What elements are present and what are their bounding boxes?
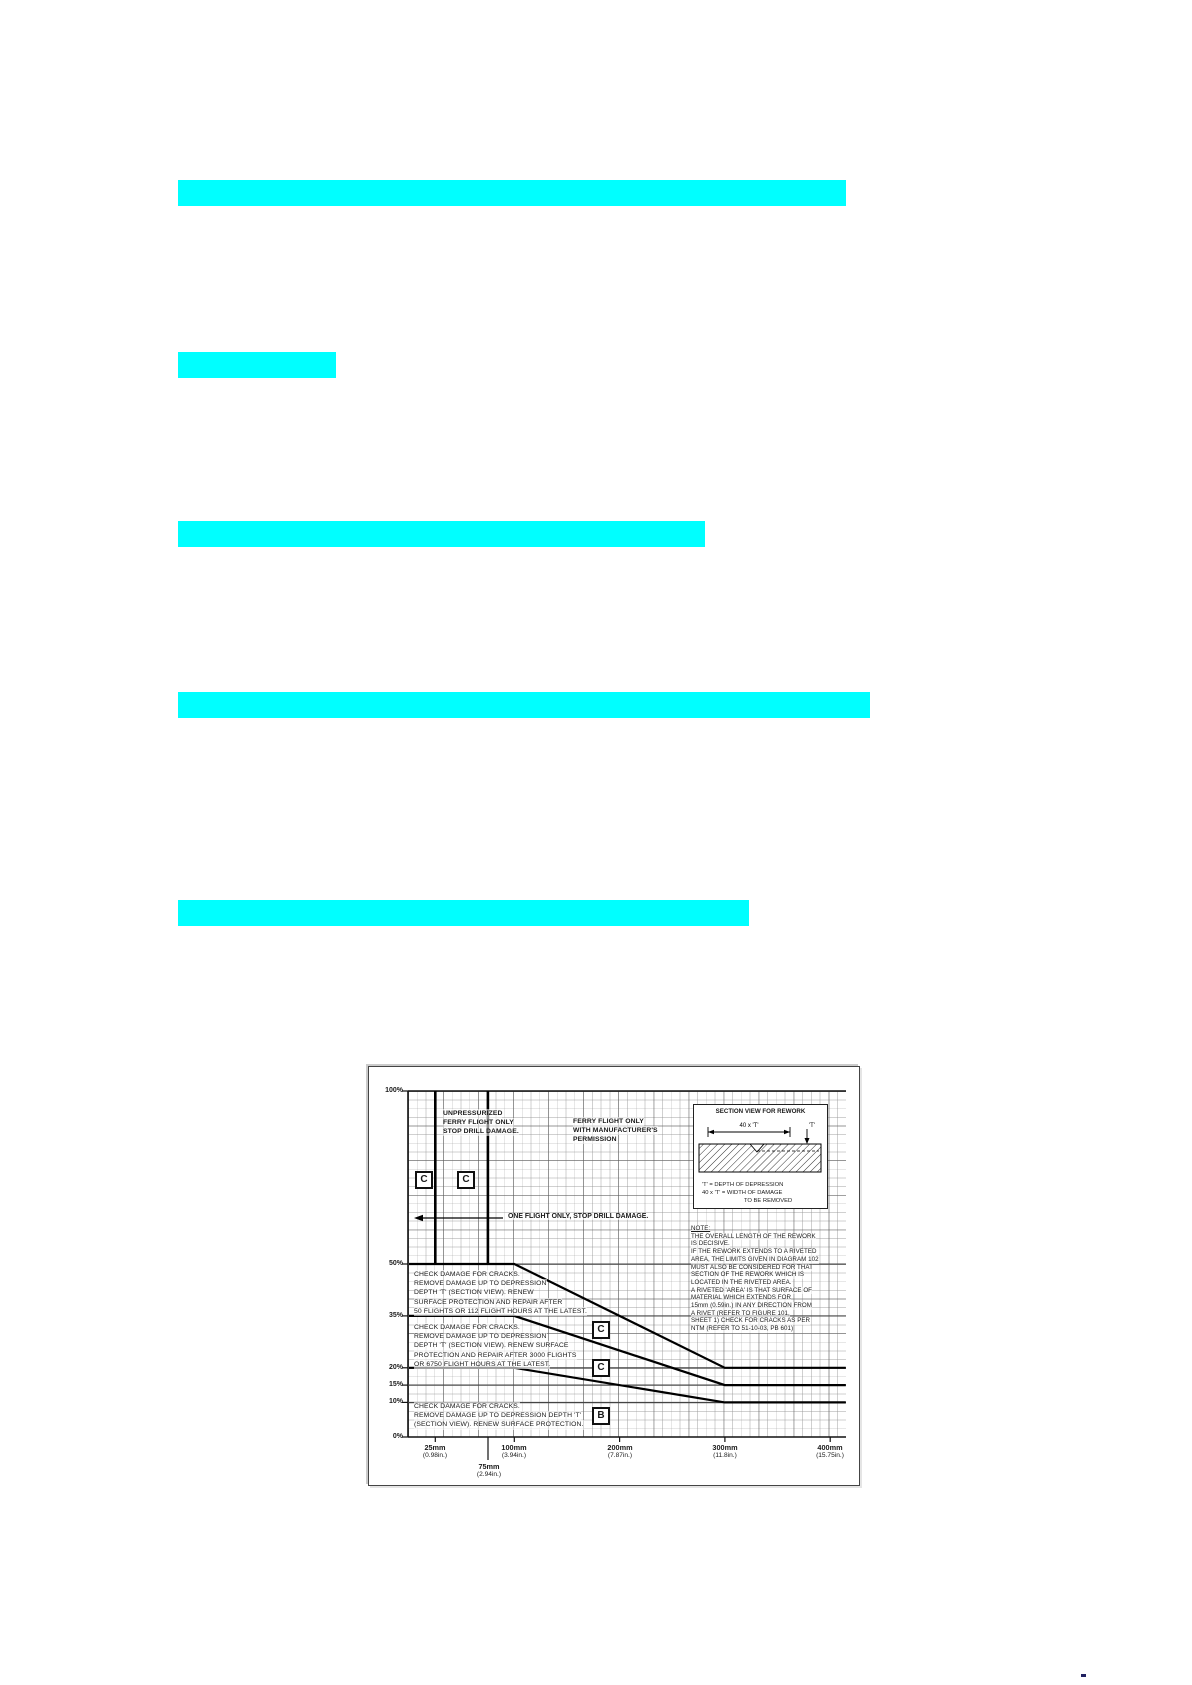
damage-limit-figure: 100% 50% 35% 20% 15% 10% 0% 25mm (0.98in… [368, 1066, 860, 1486]
callout-box-c4: C [592, 1359, 610, 1377]
y-label-15: 15% [369, 1381, 403, 1388]
callout-box-b: B [592, 1407, 610, 1425]
section-view-inset: SECTION VIEW FOR REWORK 40 x 'T' 'T' [693, 1104, 828, 1209]
note-block: NOTE: THE OVERALL LENGTH OF THE REWORK I… [691, 1225, 819, 1333]
x-label-25mm: 25mm (0.98in.) [423, 1444, 447, 1460]
instruction-block-50-flights: CHECK DAMAGE FOR CRACKS. REMOVE DAMAGE U… [414, 1270, 587, 1316]
x-label-100mm: 100mm (3.94in.) [501, 1444, 526, 1460]
callout-box-c2: C [457, 1171, 475, 1189]
callout-box-c1: C [415, 1171, 433, 1189]
x-label-400mm: 400mm (15.75in.) [816, 1444, 844, 1460]
document-page: 100% 50% 35% 20% 15% 10% 0% 25mm (0.98in… [0, 0, 1192, 1685]
y-label-10: 10% [369, 1398, 403, 1405]
section-view-drawing: 40 x 'T' 'T' [694, 1118, 827, 1180]
highlight-bar-4 [178, 692, 870, 718]
x-label-300mm: 300mm (11.8in.) [712, 1444, 737, 1460]
inset-t-label: 'T' [809, 1123, 815, 1129]
y-label-20: 20% [369, 1364, 403, 1371]
instruction-block-surface-protection: CHECK DAMAGE FOR CRACKS. REMOVE DAMAGE U… [414, 1402, 584, 1430]
inset-title: SECTION VIEW FOR REWORK [694, 1108, 827, 1115]
x-label-200mm: 200mm (7.87in.) [607, 1444, 632, 1460]
zone-ferry-flight: FERRY FLIGHT ONLY WITH MANUFACTURER'S PE… [573, 1117, 658, 1144]
page-artifact-speck [1081, 1674, 1086, 1677]
y-label-50: 50% [369, 1260, 403, 1267]
one-flight-arrow [414, 1215, 503, 1221]
inset-legend: 'T' = DEPTH OF DEPRESSION 40 x 'T' = WID… [702, 1181, 792, 1205]
instruction-block-3000-flights: CHECK DAMAGE FOR CRACKS. REMOVE DAMAGE U… [414, 1323, 577, 1369]
x-label-75mm: 75mm (2.94in.) [477, 1463, 501, 1479]
x-ticks [435, 1437, 830, 1460]
y-label-35: 35% [369, 1312, 403, 1319]
highlight-bar-2 [178, 352, 336, 378]
callout-box-c3: C [592, 1321, 610, 1339]
inset-dimension-lines [708, 1127, 807, 1142]
y-label-100: 100% [369, 1087, 403, 1094]
highlight-bar-5 [178, 900, 749, 926]
one-flight-label: ONE FLIGHT ONLY, STOP DRILL DAMAGE. [508, 1213, 648, 1220]
highlight-bar-3 [178, 521, 705, 547]
inset-dim-label: 40 x 'T' [740, 1123, 759, 1129]
highlight-bar-1 [178, 180, 846, 206]
zone-unpressurized: UNPRESSURIZED FERRY FLIGHT ONLY STOP DRI… [443, 1109, 519, 1136]
y-label-0: 0% [369, 1433, 403, 1440]
